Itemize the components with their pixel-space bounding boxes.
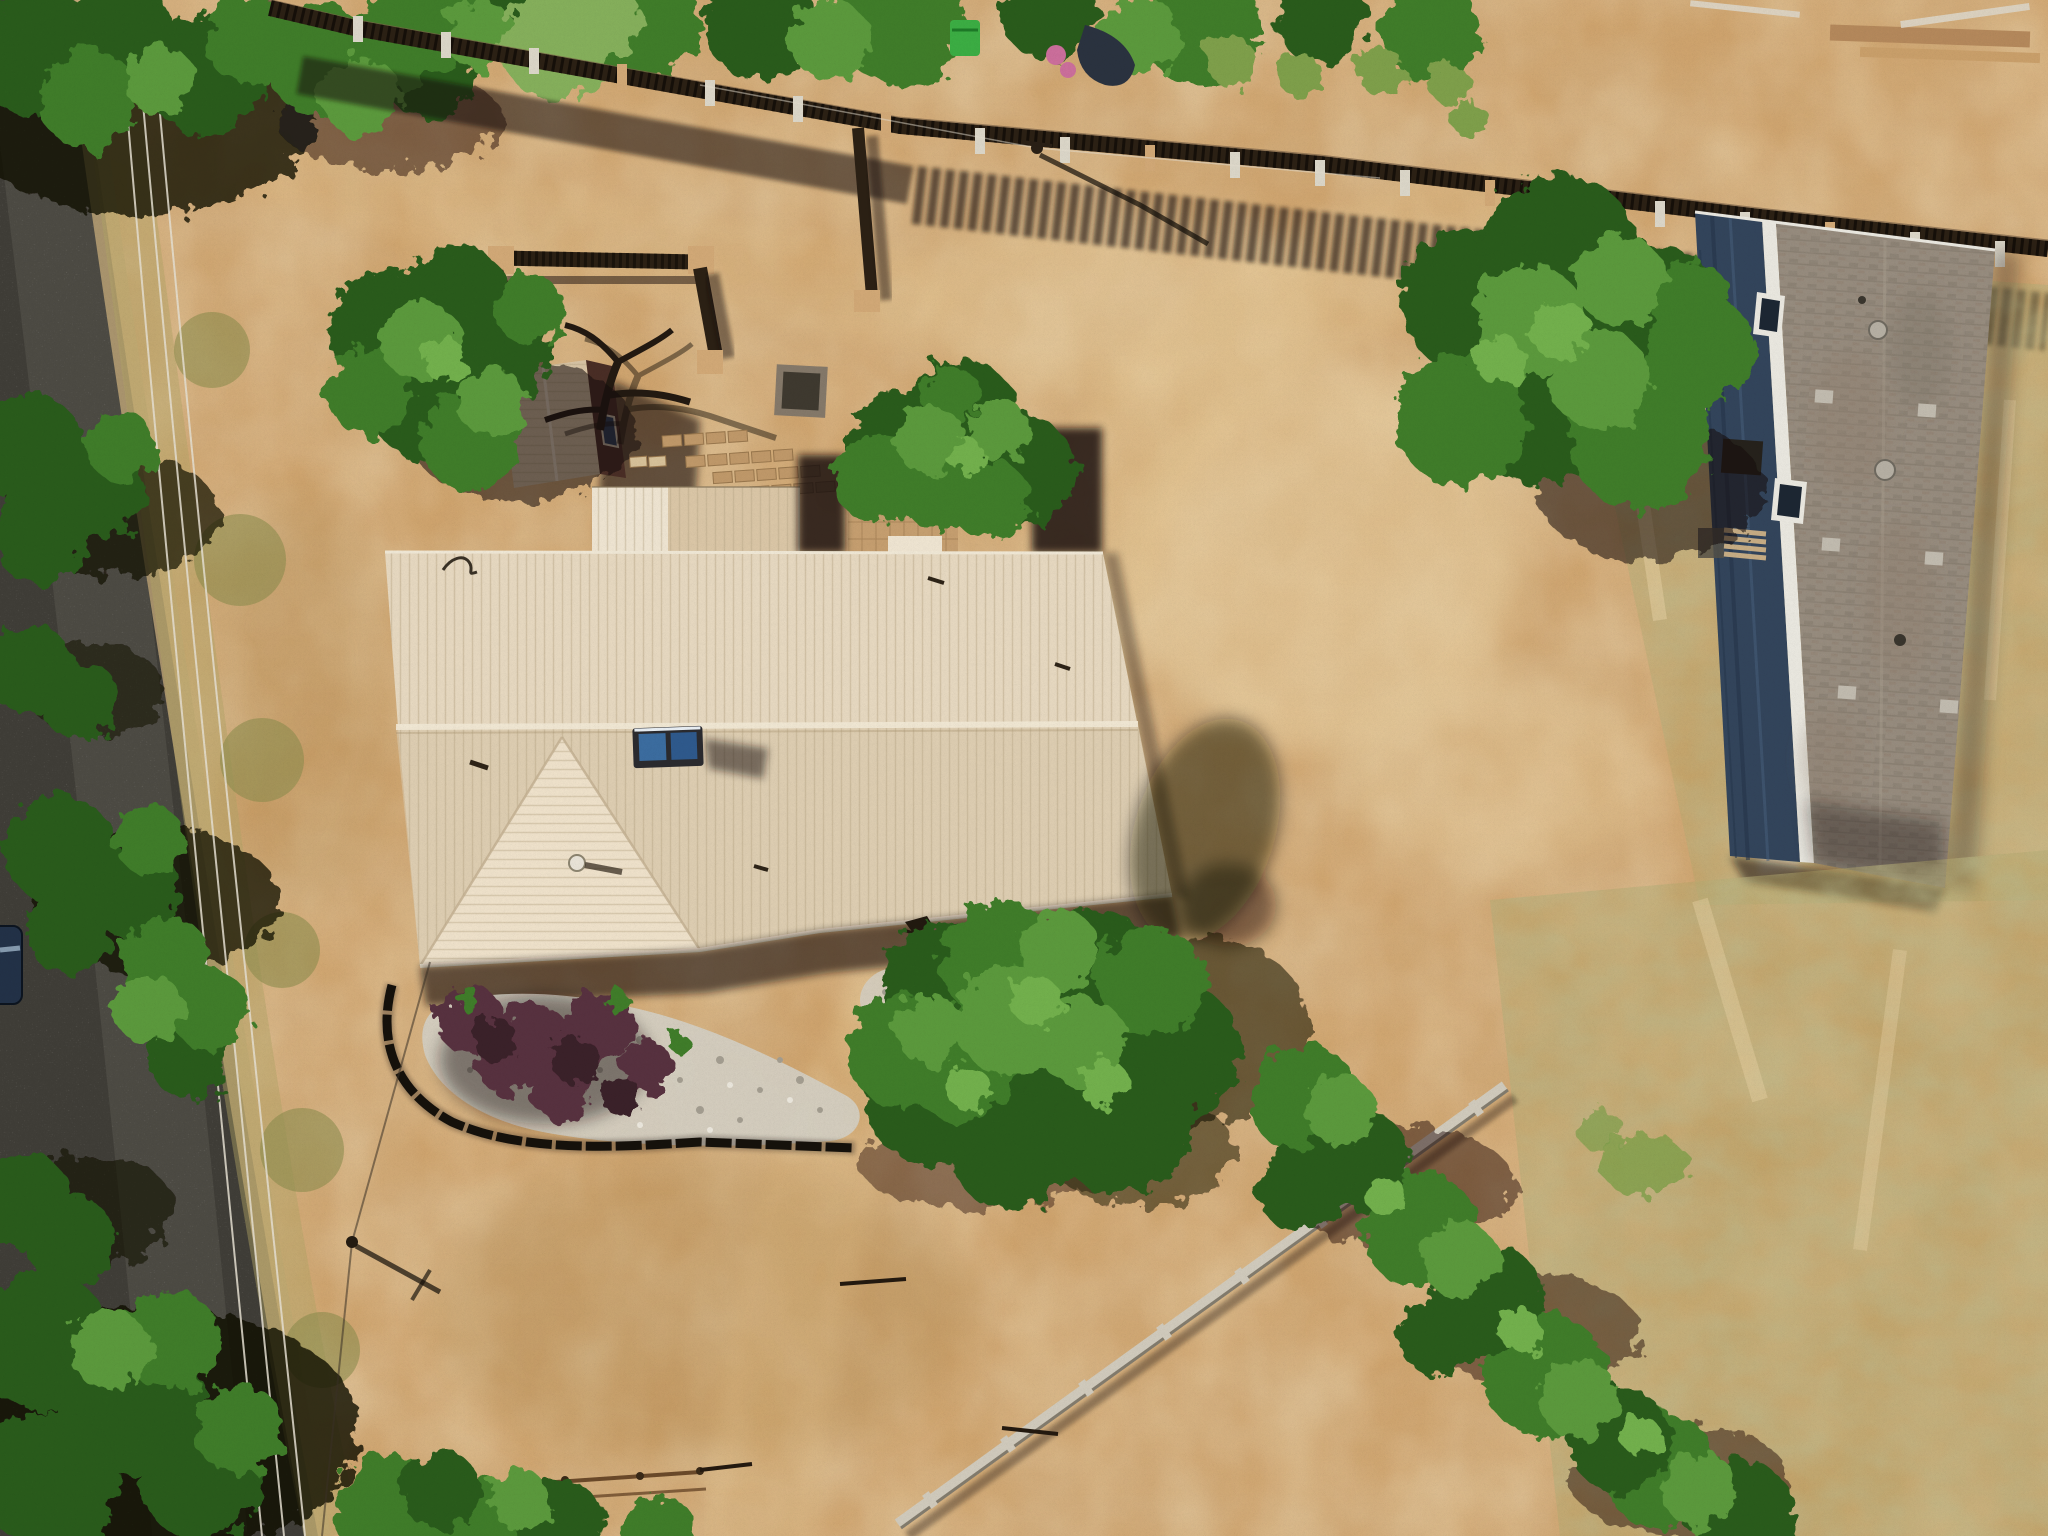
aerial-photo xyxy=(0,0,2048,1536)
scene-canvas xyxy=(0,0,2048,1536)
film-grain xyxy=(0,0,2048,1536)
